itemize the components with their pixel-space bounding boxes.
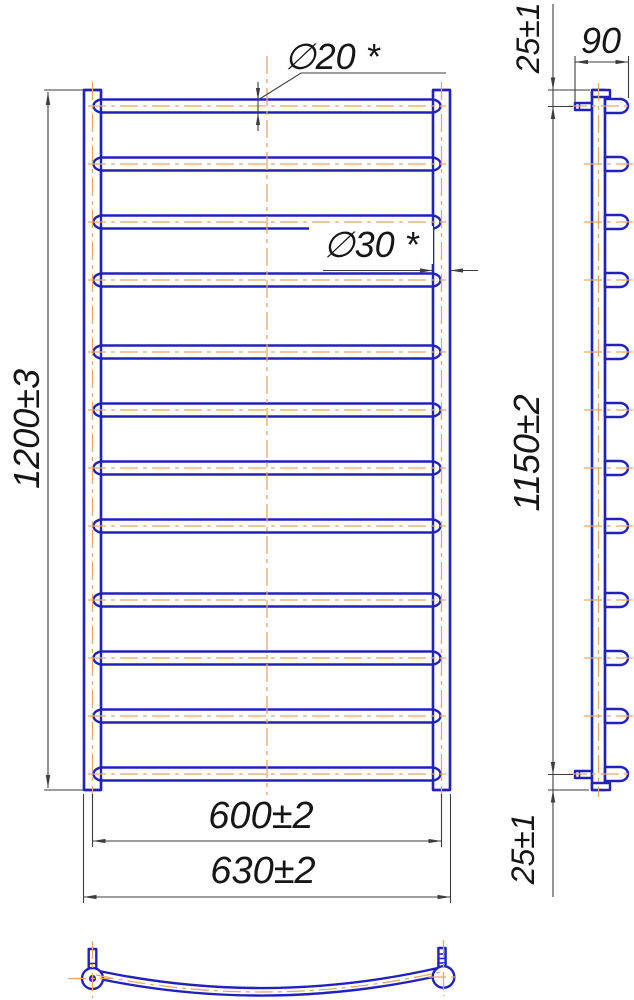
label-collector-diameter: ∅30 * <box>309 226 433 264</box>
label-depth: 90 <box>571 22 631 60</box>
drawing-canvas: ∅20 * ∅30 * 1200±3 600±2 630±2 25±1 90 1… <box>0 0 634 1000</box>
dim-collector-dia30 <box>323 268 478 272</box>
side-collector-top-cap <box>592 90 610 97</box>
side-view <box>548 4 633 897</box>
label-axis-width: 600±2 <box>201 797 321 837</box>
label-overall-width: 630±2 <box>203 852 323 892</box>
label-top-offset: 25±1 <box>512 0 546 83</box>
label-rung-diameter: ∅20 * <box>270 38 394 76</box>
label-axis-height: 1150±2 <box>508 378 546 528</box>
bottom-view <box>68 940 459 998</box>
dim-side-vertical-stack <box>548 4 590 897</box>
dim-height-1200 <box>44 90 83 790</box>
label-bottom-offset: 25±1 <box>507 804 541 894</box>
side-rung-stubs <box>605 99 628 781</box>
front-view <box>44 56 478 903</box>
side-collector-bottom-cap <box>592 783 610 790</box>
label-height: 1200±3 <box>8 354 46 504</box>
